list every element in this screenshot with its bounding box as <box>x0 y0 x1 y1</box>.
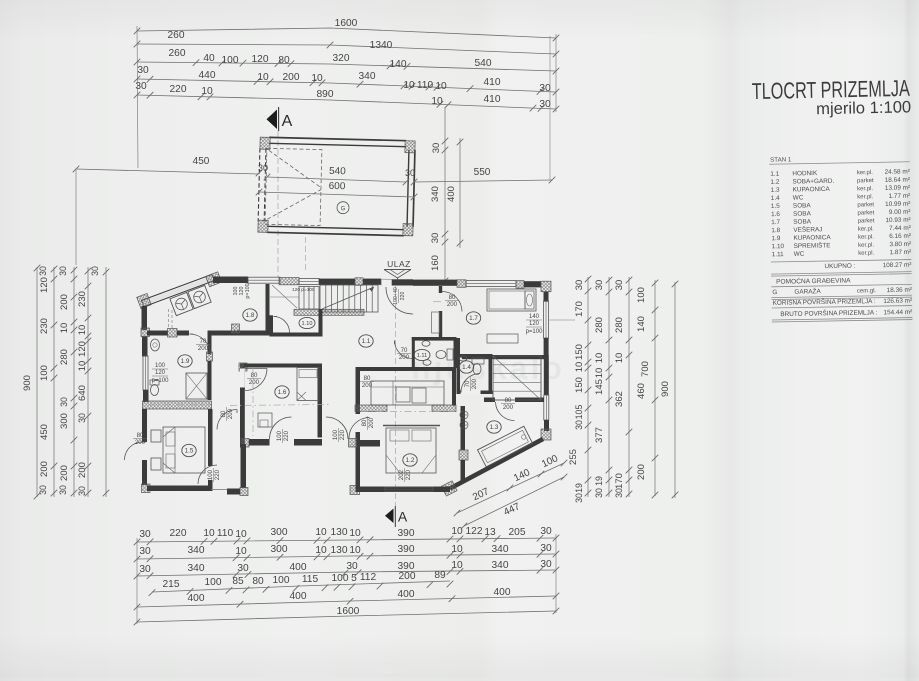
svg-text:115: 115 <box>302 574 319 585</box>
svg-text:parket: parket <box>858 218 875 224</box>
svg-text:85: 85 <box>232 576 244 587</box>
svg-text:110: 110 <box>217 528 234 539</box>
svg-text:ker.pl.: ker.pl. <box>858 226 874 232</box>
svg-text:18.36 m²: 18.36 m² <box>887 287 912 294</box>
svg-text:30: 30 <box>430 233 441 244</box>
svg-text:126.63 m²: 126.63 m² <box>883 297 912 305</box>
svg-text:150: 150 <box>574 377 585 393</box>
svg-text:200: 200 <box>249 379 260 386</box>
svg-text:140: 140 <box>636 316 647 332</box>
svg-text:200: 200 <box>39 461 50 477</box>
svg-text:410: 410 <box>484 77 501 88</box>
svg-text:ULAZ: ULAZ <box>387 259 411 269</box>
svg-text:200: 200 <box>399 571 416 582</box>
svg-text:450: 450 <box>193 156 210 167</box>
svg-text:10: 10 <box>594 353 605 364</box>
svg-text:30: 30 <box>139 546 151 557</box>
svg-text:10: 10 <box>435 81 447 92</box>
svg-text:70: 70 <box>200 338 207 345</box>
svg-text:100: 100 <box>332 429 339 440</box>
svg-text:120: 120 <box>529 321 540 327</box>
svg-text:200: 200 <box>198 345 209 352</box>
svg-text:1.87 m²: 1.87 m² <box>889 249 911 256</box>
svg-text:ker.pl.: ker.pl. <box>857 170 873 176</box>
svg-text:1.10: 1.10 <box>302 321 313 327</box>
svg-text:120: 120 <box>39 277 50 293</box>
svg-text:10: 10 <box>77 361 88 372</box>
svg-text:140: 140 <box>390 59 407 70</box>
svg-text:10: 10 <box>201 86 213 97</box>
svg-text:SOBA: SOBA <box>793 210 812 217</box>
svg-text:30: 30 <box>539 99 551 110</box>
svg-text:1.10: 1.10 <box>772 243 785 250</box>
svg-text:30: 30 <box>77 486 87 496</box>
svg-text:30: 30 <box>137 65 149 76</box>
svg-text:890: 890 <box>317 89 334 100</box>
svg-text:80: 80 <box>361 419 368 426</box>
svg-text:7.44 m²: 7.44 m² <box>889 225 911 232</box>
svg-text:p=100: p=100 <box>301 287 315 293</box>
svg-text:10: 10 <box>451 544 463 555</box>
svg-text:80: 80 <box>251 372 258 379</box>
svg-text:340: 340 <box>492 560 509 571</box>
svg-text:70: 70 <box>464 380 471 387</box>
svg-text:400: 400 <box>290 562 307 573</box>
svg-text:280: 280 <box>614 317 625 333</box>
svg-text:900: 900 <box>660 381 671 397</box>
svg-text:900: 900 <box>22 375 33 391</box>
svg-text:WC: WC <box>793 194 804 201</box>
svg-text:300: 300 <box>59 413 70 429</box>
svg-text:100: 100 <box>207 469 214 480</box>
svg-text:70: 70 <box>401 347 408 354</box>
svg-text:200: 200 <box>283 72 300 83</box>
svg-text:ker.pl.: ker.pl. <box>857 194 873 200</box>
svg-text:1.1: 1.1 <box>770 171 779 178</box>
svg-text:10: 10 <box>77 325 88 336</box>
svg-text:200: 200 <box>447 301 458 308</box>
svg-text:10: 10 <box>614 353 625 364</box>
svg-text:30: 30 <box>539 83 551 94</box>
svg-text:400: 400 <box>494 587 511 598</box>
svg-text:150: 150 <box>574 344 585 360</box>
svg-text:30: 30 <box>574 420 584 430</box>
svg-text:5: 5 <box>351 573 357 584</box>
svg-text:80: 80 <box>252 576 264 587</box>
svg-text:GARAŽA: GARAŽA <box>794 286 821 295</box>
svg-text:200: 200 <box>77 462 88 478</box>
svg-text:p=100: p=100 <box>152 378 170 384</box>
svg-text:100+40: 100+40 <box>393 287 399 305</box>
svg-text:POMOĆNA GRAĐEVINA: POMOĆNA GRAĐEVINA <box>776 275 851 285</box>
svg-text:1.11: 1.11 <box>417 353 427 359</box>
svg-text:13: 13 <box>484 527 496 538</box>
svg-text:SOBA: SOBA <box>793 218 812 225</box>
svg-text:1.8: 1.8 <box>246 312 255 319</box>
svg-text:80: 80 <box>137 432 144 439</box>
svg-text:460: 460 <box>636 383 647 399</box>
svg-text:200: 200 <box>227 408 234 419</box>
svg-text:200: 200 <box>362 382 373 389</box>
svg-text:3.80 m²: 3.80 m² <box>889 241 911 248</box>
svg-text:30: 30 <box>90 266 100 276</box>
svg-text:100: 100 <box>222 55 239 66</box>
svg-text:340: 340 <box>188 563 205 574</box>
svg-text:1340: 1340 <box>370 40 393 51</box>
svg-text:220: 220 <box>400 292 406 301</box>
svg-text:80: 80 <box>505 397 512 404</box>
svg-text:ker.pl.: ker.pl. <box>858 234 874 240</box>
svg-text:100: 100 <box>39 365 50 381</box>
svg-text:10: 10 <box>203 528 215 539</box>
svg-text:390: 390 <box>398 544 415 555</box>
svg-text:p=100: p=100 <box>526 329 544 335</box>
svg-text:200: 200 <box>368 417 375 428</box>
svg-text:440: 440 <box>199 70 216 81</box>
svg-text:130: 130 <box>331 527 348 538</box>
svg-text:390: 390 <box>398 528 415 539</box>
svg-text:400: 400 <box>398 589 415 600</box>
svg-text:30: 30 <box>58 485 68 495</box>
svg-text:10.93 m²: 10.93 m² <box>885 217 910 224</box>
svg-text:1.6: 1.6 <box>771 211 780 218</box>
svg-text:400: 400 <box>290 591 307 602</box>
svg-text:6.16 m²: 6.16 m² <box>889 233 911 240</box>
svg-text:260: 260 <box>169 48 186 59</box>
svg-text:24.58 m²: 24.58 m² <box>885 168 910 175</box>
svg-text:220: 220 <box>339 429 346 440</box>
svg-text:550: 550 <box>474 167 491 178</box>
svg-text:140: 140 <box>529 314 540 320</box>
svg-text:160: 160 <box>430 255 441 271</box>
svg-text:G: G <box>772 289 777 296</box>
svg-text:100: 100 <box>636 287 647 303</box>
svg-text:1.2: 1.2 <box>406 457 415 464</box>
svg-text:10: 10 <box>594 368 605 379</box>
svg-text:10: 10 <box>315 527 327 538</box>
svg-text:260: 260 <box>168 30 185 41</box>
svg-text:19: 19 <box>594 476 604 486</box>
svg-text:30: 30 <box>59 397 69 407</box>
svg-text:30: 30 <box>540 526 552 537</box>
svg-text:220: 220 <box>170 84 187 95</box>
svg-text:9.00 m²: 9.00 m² <box>889 209 911 216</box>
svg-text:600: 600 <box>329 181 346 192</box>
svg-text:HODNIK: HODNIK <box>792 170 818 177</box>
svg-text:KUPAONICA: KUPAONICA <box>793 234 831 242</box>
svg-text:SOBA: SOBA <box>793 202 812 209</box>
svg-text:G: G <box>341 206 346 212</box>
svg-text:120: 120 <box>155 370 166 376</box>
svg-text:154.44 m²: 154.44 m² <box>883 309 912 317</box>
svg-text:WC: WC <box>794 251 805 258</box>
svg-text:230: 230 <box>39 318 50 334</box>
svg-text:mjerilo 1:100: mjerilo 1:100 <box>816 98 911 118</box>
svg-text:10: 10 <box>235 546 247 557</box>
svg-text:1.3: 1.3 <box>771 187 780 194</box>
svg-text:170: 170 <box>614 473 625 489</box>
svg-text:220: 220 <box>283 430 290 441</box>
svg-text:1.77 m²: 1.77 m² <box>889 193 911 200</box>
svg-text:1600: 1600 <box>337 606 360 617</box>
svg-text:112: 112 <box>360 572 377 583</box>
svg-text:1.6: 1.6 <box>278 389 287 396</box>
svg-text:450: 450 <box>39 424 50 440</box>
svg-text:30: 30 <box>139 564 151 575</box>
svg-text:30: 30 <box>540 559 552 570</box>
svg-text:10: 10 <box>431 96 443 107</box>
svg-text:540: 540 <box>329 166 346 177</box>
svg-text:80: 80 <box>220 410 227 417</box>
svg-text:220: 220 <box>405 469 412 480</box>
svg-text:10: 10 <box>257 72 269 83</box>
svg-text:30: 30 <box>431 143 442 154</box>
svg-text:200: 200 <box>471 378 478 389</box>
svg-text:100: 100 <box>155 363 166 369</box>
svg-text:377: 377 <box>594 427 605 443</box>
svg-text:parket: parket <box>857 210 874 216</box>
svg-text:1.9: 1.9 <box>181 358 190 365</box>
svg-text:10: 10 <box>403 80 415 91</box>
svg-text:108.27 m²: 108.27 m² <box>883 262 912 270</box>
svg-text:230: 230 <box>77 291 88 307</box>
svg-text:280: 280 <box>594 317 605 333</box>
svg-text:200: 200 <box>399 354 410 361</box>
svg-text:30: 30 <box>614 488 624 498</box>
svg-text:320: 320 <box>333 53 350 64</box>
svg-text:30: 30 <box>594 280 605 291</box>
svg-text:30: 30 <box>574 280 585 291</box>
svg-text:89: 89 <box>434 570 446 581</box>
svg-text:340: 340 <box>492 544 509 555</box>
svg-text:130: 130 <box>331 545 348 556</box>
svg-text:30: 30 <box>237 563 249 574</box>
svg-text:30: 30 <box>58 266 68 276</box>
svg-text:100: 100 <box>276 430 283 441</box>
svg-text:10: 10 <box>315 545 327 556</box>
svg-text:1.5: 1.5 <box>185 448 194 455</box>
svg-text:30: 30 <box>574 493 584 503</box>
svg-text:340: 340 <box>430 186 441 202</box>
svg-text:120: 120 <box>292 287 300 293</box>
svg-text:540: 540 <box>475 58 492 69</box>
svg-text:700: 700 <box>640 361 651 377</box>
svg-text:1.4: 1.4 <box>462 364 471 371</box>
svg-text:40: 40 <box>203 53 215 64</box>
svg-text:30: 30 <box>38 485 48 495</box>
svg-text:10: 10 <box>235 529 247 540</box>
svg-text:30: 30 <box>135 81 147 92</box>
svg-text:10: 10 <box>59 323 70 334</box>
svg-text:362: 362 <box>614 391 625 407</box>
svg-text:A: A <box>282 113 293 130</box>
svg-text:18.64 m²: 18.64 m² <box>885 176 910 183</box>
svg-text:255: 255 <box>568 449 579 465</box>
svg-text:340: 340 <box>359 71 376 82</box>
svg-text:13.09 m²: 13.09 m² <box>885 184 910 191</box>
svg-text:1.8: 1.8 <box>771 227 780 234</box>
svg-text:30: 30 <box>139 529 151 540</box>
svg-text:parket: parket <box>857 202 874 208</box>
svg-text:1.11: 1.11 <box>772 251 785 258</box>
svg-text:10.99 m²: 10.99 m² <box>885 201 910 208</box>
svg-text:10: 10 <box>574 362 585 373</box>
svg-text:220: 220 <box>214 469 221 480</box>
svg-text:10: 10 <box>349 545 361 556</box>
svg-text:30: 30 <box>405 168 415 178</box>
svg-text:1.2: 1.2 <box>770 179 779 186</box>
svg-text:80: 80 <box>364 375 371 382</box>
svg-text:202: 202 <box>398 469 405 480</box>
svg-text:ker.pl.: ker.pl. <box>857 186 873 192</box>
svg-text:400: 400 <box>446 186 457 202</box>
svg-text:215: 215 <box>163 579 180 590</box>
svg-text:410: 410 <box>484 94 501 105</box>
svg-text:80: 80 <box>449 294 456 301</box>
svg-text:300: 300 <box>271 527 288 538</box>
svg-text:100: 100 <box>540 453 560 470</box>
svg-text:1.3: 1.3 <box>490 424 499 431</box>
svg-text:1.1: 1.1 <box>362 338 371 345</box>
svg-text:640: 640 <box>77 385 88 401</box>
svg-text:10: 10 <box>311 73 323 84</box>
svg-text:105: 105 <box>574 405 584 420</box>
svg-text:SOBA+GARD.: SOBA+GARD. <box>792 178 834 186</box>
svg-text:30: 30 <box>540 543 552 554</box>
svg-text:A: A <box>398 509 408 525</box>
svg-text:280: 280 <box>59 349 70 365</box>
svg-text:200: 200 <box>503 404 514 411</box>
svg-text:300: 300 <box>271 544 288 555</box>
svg-text:1.7: 1.7 <box>771 219 780 226</box>
svg-text:205: 205 <box>509 527 526 538</box>
svg-text:30: 30 <box>594 488 604 498</box>
svg-text:145: 145 <box>594 379 605 395</box>
svg-text:400: 400 <box>188 593 205 604</box>
svg-text:10: 10 <box>349 528 361 539</box>
svg-text:80: 80 <box>278 55 290 66</box>
svg-text:110: 110 <box>417 80 434 91</box>
svg-text:340: 340 <box>188 545 205 556</box>
svg-text:122: 122 <box>466 526 483 537</box>
svg-text:140: 140 <box>512 467 532 484</box>
svg-text:1.4: 1.4 <box>771 195 780 202</box>
svg-text:447: 447 <box>502 501 522 518</box>
svg-text:120: 120 <box>77 341 88 357</box>
svg-text:10: 10 <box>451 526 463 537</box>
svg-text:30: 30 <box>258 163 268 173</box>
svg-text:200: 200 <box>636 464 647 480</box>
svg-text:10: 10 <box>451 560 463 571</box>
svg-text:100: 100 <box>332 573 349 584</box>
svg-text:19: 19 <box>574 483 584 493</box>
svg-text:30: 30 <box>346 561 358 572</box>
svg-text:p=100: p=100 <box>245 283 251 298</box>
svg-text:30: 30 <box>614 280 625 291</box>
svg-text:UKUPNO :: UKUPNO : <box>824 263 855 271</box>
svg-text:200: 200 <box>59 294 70 310</box>
svg-text:BRUTO POVRŠINA PRIZEMLJA :: BRUTO POVRŠINA PRIZEMLJA : <box>780 307 877 318</box>
svg-text:30: 30 <box>38 266 48 276</box>
svg-text:200: 200 <box>59 465 70 481</box>
svg-text:cem.gl.: cem.gl. <box>857 288 877 294</box>
svg-text:220: 220 <box>170 528 187 539</box>
svg-text:200: 200 <box>135 439 146 446</box>
svg-text:1.9: 1.9 <box>771 235 780 242</box>
svg-text:parket: parket <box>857 178 874 184</box>
svg-text:120: 120 <box>252 54 269 65</box>
svg-text:170: 170 <box>574 301 585 317</box>
svg-text:1.5: 1.5 <box>771 203 780 210</box>
svg-text:100: 100 <box>273 575 290 586</box>
svg-text:STAN 1: STAN 1 <box>770 156 792 163</box>
svg-text:VEŠERAJ: VEŠERAJ <box>793 224 822 234</box>
svg-text:KUPAONICA: KUPAONICA <box>793 186 831 194</box>
svg-text:1600: 1600 <box>335 18 358 29</box>
svg-text:1.7: 1.7 <box>469 315 478 322</box>
svg-text:ker.pl.: ker.pl. <box>858 243 874 249</box>
svg-text:207: 207 <box>471 486 491 503</box>
svg-text:100: 100 <box>205 577 222 588</box>
svg-text:ker.pl.: ker.pl. <box>858 250 874 256</box>
svg-text:30: 30 <box>77 413 87 423</box>
